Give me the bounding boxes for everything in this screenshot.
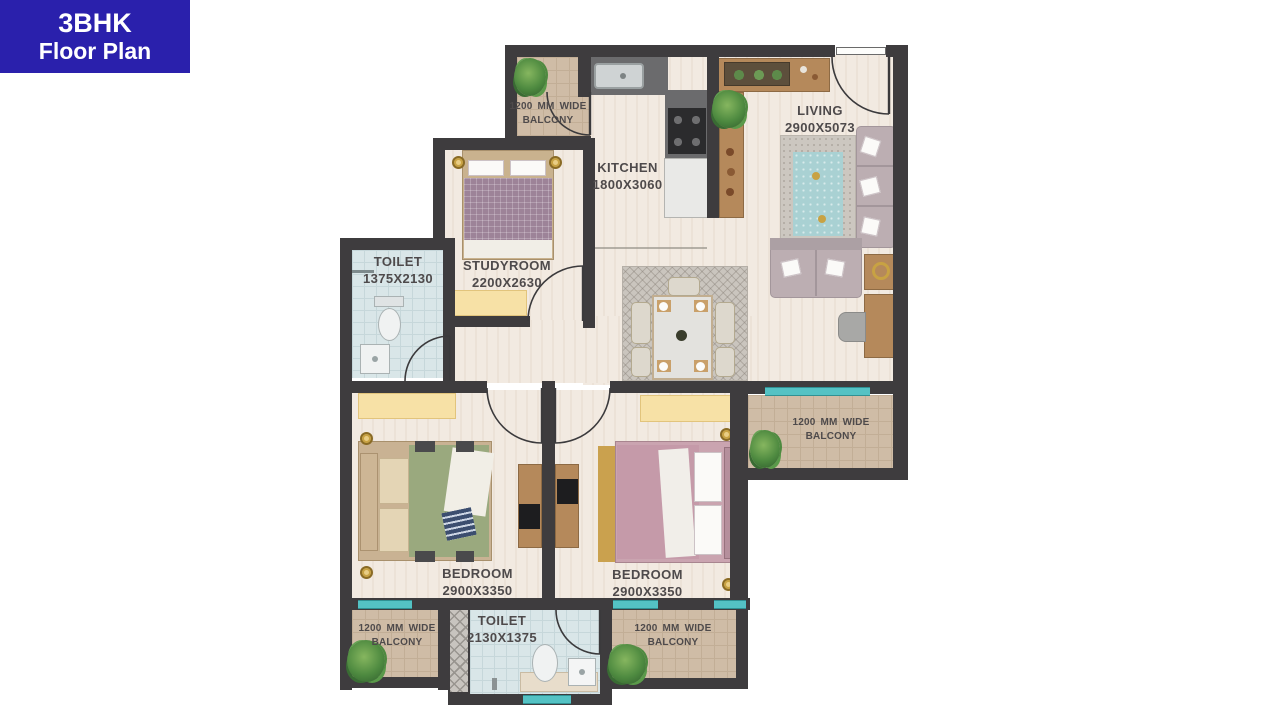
bedroom-left-desk-chair [519, 504, 540, 529]
plant [712, 90, 746, 128]
console-decor [800, 66, 807, 73]
bed-headboard [360, 453, 378, 551]
badge-subtitle: Floor Plan [39, 40, 151, 63]
toilet-lower-label: TOILET 2130X1375 [452, 613, 552, 647]
wall [340, 381, 487, 393]
basin-drain [579, 669, 585, 675]
bottle [727, 168, 735, 176]
bed-post [456, 441, 474, 452]
shower-drain [372, 356, 378, 362]
balcony-line1: 1200 MM WIDE [614, 622, 732, 636]
kitchen-name: KITCHEN [585, 160, 670, 177]
bedroom-left-name: BEDROOM [420, 566, 535, 583]
wall [505, 45, 835, 57]
bed-pillow [510, 160, 546, 176]
living-label: LIVING 2900X5073 [775, 103, 865, 137]
balcony-line2: BALCONY [775, 430, 887, 444]
wall [893, 45, 908, 480]
wall [505, 45, 517, 148]
console-planter-tray [724, 62, 790, 86]
entry-door-leaf [836, 47, 886, 55]
wall-sconce [452, 156, 465, 169]
bed-pillow [694, 452, 722, 502]
wall [578, 45, 591, 97]
wall [433, 138, 445, 250]
sofa-pillow [860, 216, 880, 236]
bedroom-right-name: BEDROOM [590, 567, 705, 584]
refrigerator [664, 158, 708, 218]
toilet-cistern [374, 296, 404, 307]
balcony-line1: 1200 MM WIDE [775, 416, 887, 430]
dining-chair [631, 347, 651, 377]
bedroom-right-label: BEDROOM 2900X3350 [590, 567, 705, 601]
plate [696, 362, 705, 371]
living-rug-center [793, 152, 843, 236]
kitchen-edge-line [585, 247, 707, 249]
bottle [726, 188, 734, 196]
wall [583, 316, 595, 328]
loveseat-backrest [770, 238, 862, 250]
studyroom-bed-sheet [464, 240, 552, 258]
sofa-seam [856, 165, 896, 167]
toilet-upper-label: TOILET 1375X2130 [352, 254, 444, 288]
stove [668, 108, 706, 154]
side-table-decor [872, 262, 890, 280]
toilet-lower-name: TOILET [452, 613, 552, 630]
toilet-lower-dims: 2130X1375 [452, 630, 552, 647]
toilet-bowl [532, 644, 558, 682]
studyroom-wardrobe [453, 290, 527, 316]
rug-decor [812, 172, 820, 180]
balcony-bottom-right-label: 1200 MM WIDE BALCONY [614, 622, 732, 650]
bedroom-left-wardrobe [358, 393, 456, 419]
balcony-top-left-label: 1200 MM WIDE BALCONY [508, 100, 588, 128]
wall [542, 381, 555, 608]
sofa-seam [856, 205, 896, 207]
plate [659, 302, 668, 311]
sofa-pillow [825, 259, 846, 278]
wall-sconce [549, 156, 562, 169]
kitchen-dims: 1800X3060 [585, 177, 670, 194]
bottle [726, 148, 734, 156]
balcony-line2: BALCONY [508, 114, 588, 128]
wall [610, 381, 732, 393]
balcony-line2: BALCONY [350, 636, 444, 650]
dining-chair [715, 302, 735, 344]
dining-chair [631, 302, 651, 344]
balcony-bottom-left-label: 1200 MM WIDE BALCONY [350, 622, 444, 650]
bedroom-right-desk-chair [557, 479, 578, 504]
wall [340, 238, 455, 250]
balcony-mid-right-label: 1200 MM WIDE BALCONY [775, 416, 887, 444]
toilet-upper-name: TOILET [352, 254, 444, 271]
bed-post [415, 441, 435, 452]
title-badge: 3BHK Floor Plan [0, 0, 190, 73]
bedroom-right-wardrobe [640, 395, 732, 422]
plant [608, 644, 646, 684]
toilet-bowl [378, 308, 401, 341]
wall [736, 598, 748, 689]
bedroom-right-dims: 2900X3350 [590, 584, 705, 601]
toilet-upper-dims: 1375X2130 [352, 271, 444, 288]
table-centerpiece [676, 330, 687, 341]
bedroom-left-label: BEDROOM 2900X3350 [420, 566, 535, 600]
balcony-line1: 1200 MM WIDE [350, 622, 444, 636]
studyroom-label: STUDYROOM 2200X2630 [447, 258, 567, 292]
window [523, 695, 571, 704]
wall-sconce [360, 432, 373, 445]
bed-pillow [694, 505, 722, 555]
bed-sheet-white [444, 447, 494, 516]
living-name: LIVING [775, 103, 865, 120]
window [358, 600, 412, 609]
floor-drain [492, 678, 497, 690]
bedroom-left-dims: 2900X3350 [420, 583, 535, 600]
window [613, 600, 658, 609]
bed-pillow [379, 458, 409, 504]
bed-pillow [379, 508, 409, 552]
balcony-line1: 1200 MM WIDE [508, 100, 588, 114]
wall [748, 468, 905, 480]
balcony-line2: BALCONY [614, 636, 732, 650]
desk-chair-living [838, 312, 866, 342]
loveseat-seam [815, 250, 817, 296]
floor-plan-screenshot: KITCHEN 1800X3060 LIVING 2900X5073 STUDY… [0, 0, 1280, 720]
studyroom-dims: 2200X2630 [447, 275, 567, 292]
bed-post [415, 551, 435, 562]
window [714, 600, 746, 609]
plate [659, 362, 668, 371]
living-dims: 2900X5073 [775, 120, 865, 137]
badge-title: 3BHK [58, 10, 132, 37]
wall [707, 55, 719, 218]
wall [433, 138, 595, 150]
plate [696, 302, 705, 311]
dining-chair [715, 347, 735, 377]
plant [514, 58, 546, 96]
bed-pillow [468, 160, 504, 176]
wall [730, 381, 748, 608]
studyroom-bed-blanket [464, 178, 552, 240]
studyroom-name: STUDYROOM [447, 258, 567, 275]
window [765, 387, 870, 396]
wall-sconce [360, 566, 373, 579]
wall [443, 316, 530, 327]
bed-post [456, 551, 474, 562]
dining-chair [668, 277, 700, 296]
rug-decor [818, 215, 826, 223]
kitchen-label: KITCHEN 1800X3060 [585, 160, 670, 194]
console-decor [812, 74, 818, 80]
bedroom-right-desk [555, 464, 579, 548]
sink-faucet [620, 73, 626, 79]
kitchen-sink [594, 63, 644, 89]
